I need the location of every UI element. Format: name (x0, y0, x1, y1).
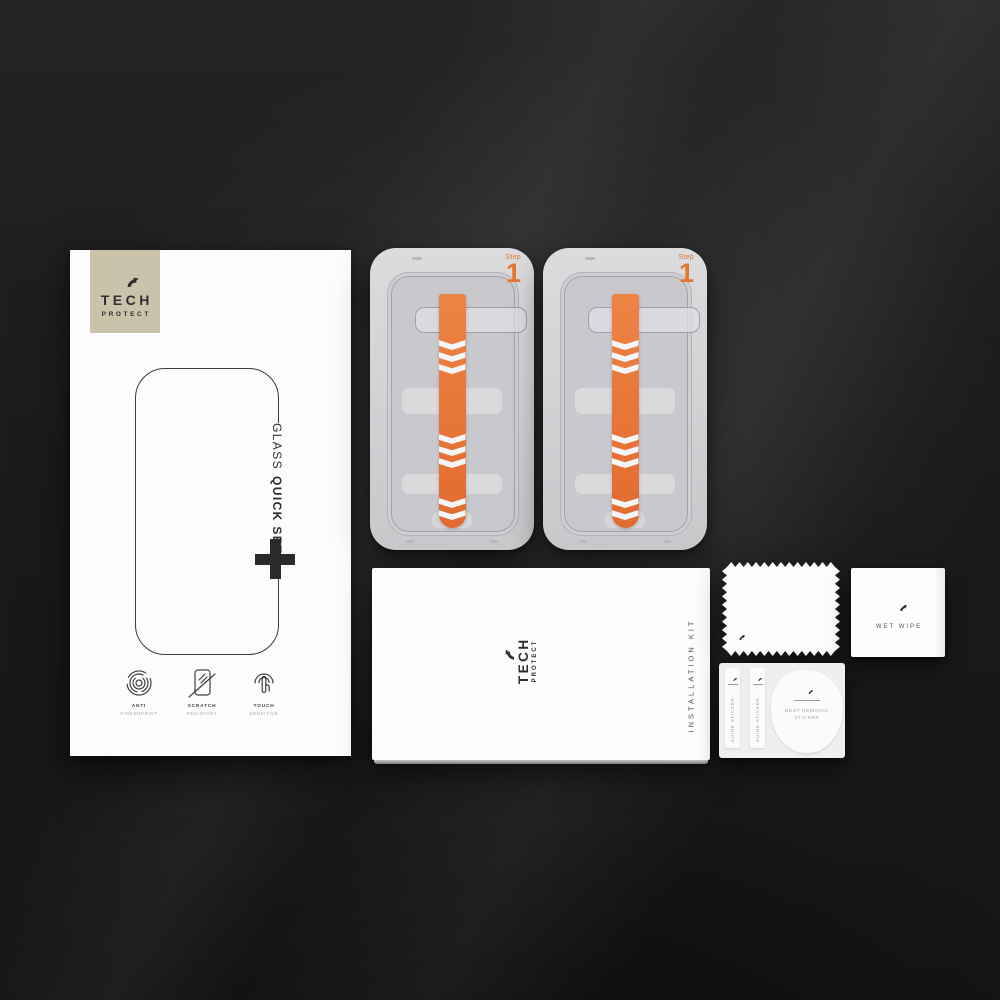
dust-sticker-label-line1: DUST REMOVAL (771, 709, 843, 714)
orange-pull-tab (612, 294, 639, 528)
brand-subname: PROTECT (532, 630, 538, 694)
pull-tab-arrow-icon (439, 446, 466, 456)
feature-label-line2: RESISTANT (172, 711, 232, 716)
tray-notch (406, 540, 414, 543)
step-number: 1 (505, 261, 521, 286)
tray-notch (490, 540, 498, 543)
touch-sensitive-icon (247, 666, 281, 700)
tech-protect-hexagon-icon (112, 261, 138, 287)
tech-protect-hexagon-icon (490, 650, 514, 674)
pull-tab-arrow-icon (439, 458, 466, 468)
tray-notch (412, 257, 422, 260)
scratch-resistant-icon (185, 666, 219, 700)
orange-pull-tab (439, 294, 466, 528)
pull-tab-arrow-icon (439, 340, 466, 350)
hexagon-logo-icon (890, 594, 907, 611)
guide-sticker: GUIDE STICKER (750, 668, 765, 748)
applicator-tray-1: Step 1 (370, 248, 534, 550)
microfiber-cloth (722, 562, 840, 656)
divider (753, 684, 763, 685)
brand-name: TECH (516, 630, 531, 694)
step-badge: Step 1 (505, 254, 521, 286)
feature-anti-fingerprint: ANTI FINGERPRINT (109, 666, 169, 716)
pull-tab-arrow-icon (612, 364, 639, 374)
brand-subname: PROTECT (90, 311, 160, 318)
wet-wipe-label: WET WIPE (851, 624, 945, 630)
hexagon-logo-icon (731, 626, 745, 640)
brand-name: TECH (90, 292, 160, 308)
pinked-cloth-shape (722, 562, 840, 656)
feature-touch-sensitive: TOUCH SENSITIVE (234, 666, 294, 716)
pull-tab-arrow-icon (612, 510, 639, 520)
guide-sticker-label: GUIDE STICKER (755, 695, 761, 745)
tray-notch (579, 540, 587, 543)
tray-notch (585, 257, 595, 260)
tray-notch (663, 540, 671, 543)
hexagon-logo-icon (753, 672, 762, 681)
step-number: 1 (678, 261, 694, 286)
wet-wipe-sachet: WET WIPE (851, 568, 945, 657)
hexagon-logo-icon (728, 672, 737, 681)
glass-phone-outline (135, 368, 279, 655)
dust-removal-sticker: DUST REMOVAL STICKER (771, 670, 843, 753)
glass-top-edge (415, 307, 527, 333)
feature-label-line2: SENSITIVE (234, 711, 294, 716)
pull-tab-arrow-icon (439, 434, 466, 444)
applicator-tray-2: Step 1 (543, 248, 707, 550)
guide-sticker: GUIDE STICKER (725, 668, 740, 748)
hexagon-logo-icon (802, 683, 813, 694)
product-title-regular: GLASS (270, 423, 284, 470)
pull-tab-arrow-icon (439, 498, 466, 508)
pull-tab-arrow-icon (612, 434, 639, 444)
divider (728, 684, 738, 685)
pull-tab-arrow-icon (439, 510, 466, 520)
divider (794, 700, 820, 701)
feature-label-line2: FINGERPRINT (109, 711, 169, 716)
brand-badge: TECH PROTECT (90, 250, 160, 333)
feature-label-line1: SCRATCH (172, 704, 232, 709)
feature-label-line1: ANTI (109, 704, 169, 709)
pull-tab-arrow-icon (612, 446, 639, 456)
fingerprint-icon (122, 666, 156, 700)
installation-kit-label: INSTALLATION KIT (686, 611, 697, 741)
pull-tab-arrow-icon (439, 364, 466, 374)
brand-logo-rotated: TECH PROTECT (490, 630, 554, 694)
dust-sticker-label-line2: STICKER (771, 716, 843, 721)
pull-tab-arrow-icon (612, 340, 639, 350)
pull-tab-arrow-icon (612, 352, 639, 362)
feature-label-line1: TOUCH (234, 704, 294, 709)
product-photo-scene: TECH PROTECT GLASSQUICK SET ANTI FINGERP… (0, 0, 1000, 1000)
step-badge: Step 1 (678, 254, 694, 286)
product-title: GLASSQUICK SET (269, 423, 285, 543)
pull-tab-arrow-icon (612, 458, 639, 468)
installation-kit-box: TECH PROTECT INSTALLATION KIT (372, 568, 710, 760)
feature-scratch-resistant: SCRATCH RESISTANT (172, 666, 232, 716)
retail-package: TECH PROTECT GLASSQUICK SET ANTI FINGERP… (70, 250, 351, 756)
guide-sticker-label: GUIDE STICKER (730, 695, 736, 745)
sticker-sheet: GUIDE STICKER GUIDE STICKER DUST REMOVAL… (719, 663, 845, 758)
pull-tab-arrow-icon (612, 498, 639, 508)
glass-top-edge (588, 307, 700, 333)
pull-tab-arrow-icon (439, 352, 466, 362)
